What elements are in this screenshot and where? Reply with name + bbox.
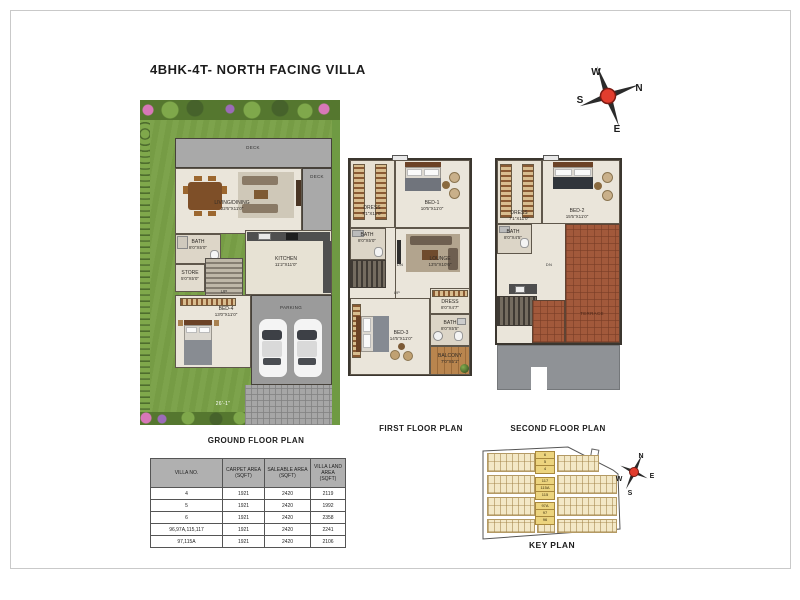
- table-row: 96,97A,115,117192124202241: [151, 524, 346, 536]
- pillow: [186, 327, 197, 333]
- first-floor-title: FIRST FLOOR PLAN: [346, 424, 496, 433]
- ground-floor-plan: DECK DECK LIVING/DINING22'6"X11'0" BATH8…: [140, 100, 340, 425]
- cell: 2420: [265, 524, 311, 536]
- plot-block: [487, 475, 535, 494]
- cell: 5: [151, 500, 223, 512]
- nightstand: [178, 320, 183, 326]
- pillow: [424, 169, 439, 176]
- compass-rose-main: W N S E: [572, 55, 648, 139]
- deck-side-label: DECK: [310, 174, 324, 179]
- cell: 2358: [311, 512, 346, 524]
- terrace-label: TERRACE: [580, 311, 604, 316]
- plot-block: [557, 497, 617, 516]
- armchair: [449, 188, 460, 199]
- table-row: 4192124202119: [151, 488, 346, 500]
- car-roof: [262, 341, 282, 357]
- side-table: [594, 182, 602, 190]
- col-saleable-area: SALEABLE AREA (SQFT): [265, 459, 311, 488]
- col-villa-land-area: VILLA LAND AREA (SQFT): [311, 459, 346, 488]
- page-title: 4BHK-4T- NORTH FACING VILLA: [150, 62, 366, 77]
- compass-rose-key: N E W S: [615, 449, 655, 497]
- villa-brochure-page: { "title": "4BHK-4T- NORTH FACING VILLA"…: [0, 0, 800, 600]
- car-rear-window: [298, 358, 316, 365]
- pillow: [199, 327, 210, 333]
- wardrobe: [180, 298, 236, 306]
- dining-chair: [194, 211, 202, 216]
- hedge-bottom: [140, 412, 250, 425]
- dress2-label: DRESS8'0"X4'7": [441, 299, 459, 311]
- cell: 2420: [265, 488, 311, 500]
- key-plan-title: KEY PLAN: [477, 540, 627, 550]
- compass-south-label: S: [577, 95, 584, 106]
- cell: 2106: [311, 536, 346, 548]
- kitchen-sink: [258, 233, 271, 240]
- bed1-label: BED-110'5"X11'0": [421, 200, 444, 212]
- side-table: [398, 343, 405, 350]
- balcony-label: BALCONY7'0"X5'1": [438, 353, 462, 365]
- roof-notch: [531, 367, 547, 391]
- washing-machine: [433, 331, 443, 341]
- area-table: VILLA NO. CARPET AREA (SQFT) SALEABLE AR…: [150, 458, 346, 548]
- table-row: 6192124202358: [151, 512, 346, 524]
- plot-block: [557, 455, 599, 472]
- tv-unit: [397, 240, 401, 264]
- bed-blanket: [553, 177, 593, 189]
- bath1-label: BATH8'0"X5'0": [358, 232, 376, 244]
- cell: 96,97A,115,117: [151, 524, 223, 536]
- key-plan: 6 5 4 117 115A 115 97A 97 96 N E W S KEY…: [480, 443, 655, 560]
- bed-ground-label: BED-413'0"X11'0": [215, 306, 238, 318]
- hedge-top: [140, 100, 340, 120]
- terrace-area: [565, 224, 620, 343]
- compass-west-label: W: [591, 67, 601, 78]
- living-dining-label: LIVING/DINING22'6"X11'0": [214, 200, 249, 212]
- table-header-row: VILLA NO. CARPET AREA (SQFT) SALEABLE AR…: [151, 459, 346, 488]
- armchair: [403, 351, 413, 361]
- compass-center: [601, 89, 616, 104]
- dining-chair: [208, 176, 216, 181]
- bed-blanket: [184, 340, 212, 365]
- car-windshield: [297, 330, 317, 340]
- cell: 97,115A: [151, 536, 223, 548]
- cell: 2420: [265, 512, 311, 524]
- cell: 1921: [223, 524, 265, 536]
- armchair: [449, 172, 460, 183]
- table-row: 5192124201992: [151, 500, 346, 512]
- ground-floor-title: GROUND FLOOR PLAN: [181, 436, 331, 445]
- cell: 1921: [223, 488, 265, 500]
- highlighted-plot-96: 96: [535, 516, 555, 525]
- bed3-label: BED-314'5"X11'0": [390, 330, 413, 342]
- plot-block: [557, 475, 617, 494]
- stairs-first: [350, 260, 386, 288]
- cell: 1921: [223, 536, 265, 548]
- up-label-first: UP: [394, 290, 400, 295]
- dining-chair: [194, 176, 202, 181]
- stairs-second: [497, 296, 537, 326]
- dn-label-first: DN: [397, 262, 403, 267]
- highlighted-plot-4: 4: [535, 465, 555, 474]
- wardrobe: [432, 290, 468, 297]
- cell: 1921: [223, 500, 265, 512]
- car: [258, 318, 288, 378]
- second-floor-title: SECOND FLOOR PLAN: [483, 424, 633, 433]
- plot-block: [557, 519, 617, 533]
- cell: 1921: [223, 512, 265, 524]
- sofa: [242, 176, 278, 185]
- toilet: [454, 331, 463, 341]
- stove: [286, 233, 298, 240]
- deck-label: DECK: [246, 145, 260, 150]
- bath2-label: BATH8'0"X5'5": [441, 320, 459, 332]
- bed-blanket: [405, 178, 441, 191]
- sofa: [410, 236, 452, 245]
- lower-roof: [497, 345, 620, 390]
- hedge-left: [140, 120, 150, 425]
- pillow: [363, 334, 371, 348]
- compass-east-label: E: [614, 124, 621, 135]
- car-windshield: [262, 330, 282, 340]
- kitchen-counter-side: [323, 241, 331, 293]
- key-compass-east-label: E: [650, 473, 655, 480]
- plot-block: [487, 519, 535, 533]
- plant: [460, 364, 469, 373]
- key-compass-north-label: N: [638, 453, 643, 460]
- armchair: [602, 172, 613, 183]
- side-table: [442, 181, 450, 189]
- appliance: [515, 286, 525, 293]
- dn-label-second: DN: [546, 262, 552, 267]
- parking-label: PARKING: [280, 305, 302, 310]
- pillow: [407, 169, 422, 176]
- room-deck-top: [175, 138, 332, 168]
- car: [293, 318, 323, 378]
- dining-chair: [183, 186, 188, 194]
- plot-width-dim: 26'-1": [216, 401, 231, 407]
- tv-unit: [296, 180, 301, 206]
- compass-north-label: N: [635, 83, 642, 94]
- lounge-label: LOUNGE13'5"X10'6": [429, 256, 452, 268]
- coffee-table: [254, 190, 268, 199]
- pillow: [555, 169, 572, 176]
- toilet: [374, 247, 383, 257]
- bath-second-label: BATH8'0"X4'5": [504, 229, 522, 241]
- cell: 6: [151, 512, 223, 524]
- bed-blanket: [373, 316, 389, 352]
- col-carpet-area: CARPET AREA (SQFT): [223, 459, 265, 488]
- cell: 2119: [311, 488, 346, 500]
- first-floor-plan: DRESS7'1"X11'0" BED-110'5"X11'0" BATH8'0…: [348, 158, 472, 390]
- cell: 2241: [311, 524, 346, 536]
- up-label-ground: UP: [221, 289, 228, 294]
- armchair: [390, 350, 400, 360]
- cell: 4: [151, 488, 223, 500]
- pillow: [363, 318, 371, 332]
- second-floor-plan: DRESS7'1"X11'0" BED-215'5"X11'0" BATH8'0…: [495, 158, 625, 390]
- armchair: [602, 190, 613, 201]
- plot-block: [487, 497, 535, 516]
- dress-second-label: DRESS7'1"X11'0": [509, 210, 529, 222]
- car-roof: [297, 341, 317, 357]
- dress1-label: DRESS7'1"X11'0": [362, 205, 382, 217]
- grass-right-strip: [332, 120, 340, 425]
- shower: [177, 236, 188, 249]
- cell: 1992: [311, 500, 346, 512]
- cell: 2420: [265, 500, 311, 512]
- driveway-paving: [245, 385, 332, 425]
- cell: 2420: [265, 536, 311, 548]
- car-rear-window: [263, 358, 281, 365]
- table-row: 97,115A192124202106: [151, 536, 346, 548]
- highlighted-plot-115: 115: [535, 491, 555, 500]
- bath-ground-label: BATH8'0"X5'0": [189, 239, 207, 251]
- col-villa-no: VILLA NO.: [151, 459, 223, 488]
- terrace-area: [532, 300, 565, 343]
- key-compass-south-label: S: [628, 490, 633, 497]
- bed2-label: BED-215'5"X11'0": [566, 208, 589, 220]
- pillow: [574, 169, 591, 176]
- plot-block: [487, 453, 535, 472]
- dining-chair: [222, 186, 227, 194]
- kitchen-label: KITCHEN11'2"X11'0": [275, 256, 297, 268]
- key-compass-west-label: W: [616, 476, 623, 483]
- nightstand: [214, 320, 219, 326]
- store-label: STORE5'0"X5'0": [181, 270, 199, 282]
